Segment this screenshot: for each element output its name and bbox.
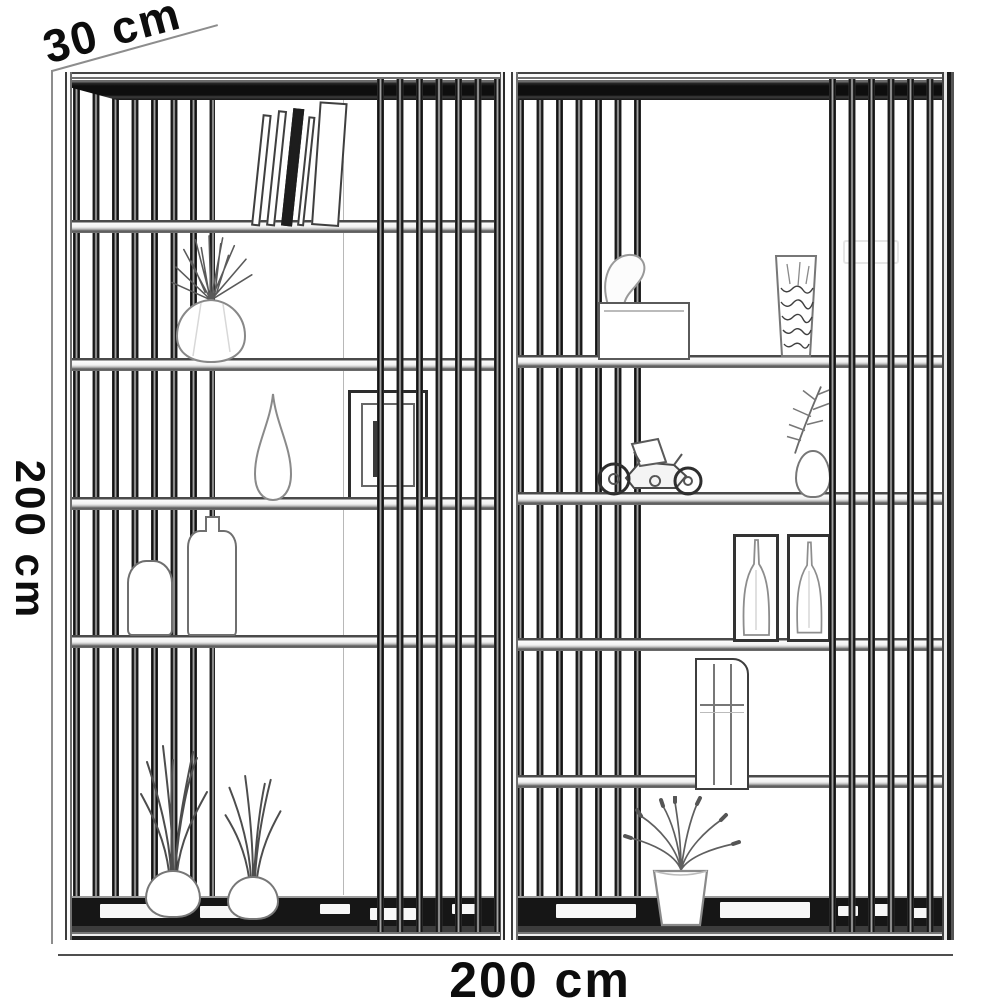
faceted-round-vase [173, 298, 249, 364]
potted-flowers [617, 796, 745, 870]
tall-bottle-cap [205, 516, 220, 532]
frame-bottom [511, 932, 954, 940]
round-bottle [127, 560, 173, 636]
spiky-plant [165, 234, 257, 302]
bud-vase [795, 450, 831, 498]
base-highlight [556, 904, 636, 918]
leaning-books [251, 92, 355, 226]
slat-band-right [829, 79, 945, 932]
width-dimension-label: 200 cm [449, 951, 631, 1000]
frame-top [511, 72, 954, 79]
tall-bottle [187, 530, 237, 636]
bottle-bookend [733, 534, 779, 642]
frame-top [65, 72, 505, 79]
frame-left [65, 72, 72, 940]
base-highlight [320, 904, 350, 914]
grass-plant [217, 772, 289, 880]
flower-pot [647, 866, 714, 928]
grass-plant [133, 742, 213, 874]
frame-right [500, 72, 505, 940]
furniture-dimension-sketch: 30 cm 200 cm 200 cm [0, 0, 1000, 1000]
frame-bottom [65, 932, 505, 940]
teardrop-vase [253, 392, 293, 502]
toy-motorcycle [590, 432, 712, 496]
frame-left [511, 72, 518, 940]
grass-vase [145, 870, 201, 918]
glass-with-stems [768, 254, 823, 358]
frame-right [942, 72, 954, 940]
folded-napkin [600, 250, 658, 306]
base-highlight [720, 902, 810, 918]
book [311, 101, 348, 227]
right-bay [511, 72, 954, 940]
tissue-box [598, 302, 690, 360]
book-file-divider [730, 664, 732, 785]
height-dimension-label: 200 cm [6, 460, 54, 620]
left-bay [65, 72, 505, 940]
book-file-band [700, 712, 744, 713]
tissue-box-lid [604, 310, 684, 312]
depth-dimension-label: 30 cm [37, 0, 187, 74]
book-file-box [695, 658, 749, 790]
bottle-bookend [787, 534, 831, 642]
book-file-band [700, 704, 744, 706]
book-file-divider [713, 664, 715, 785]
grass-vase [227, 876, 279, 920]
slat-band-right [377, 79, 501, 932]
